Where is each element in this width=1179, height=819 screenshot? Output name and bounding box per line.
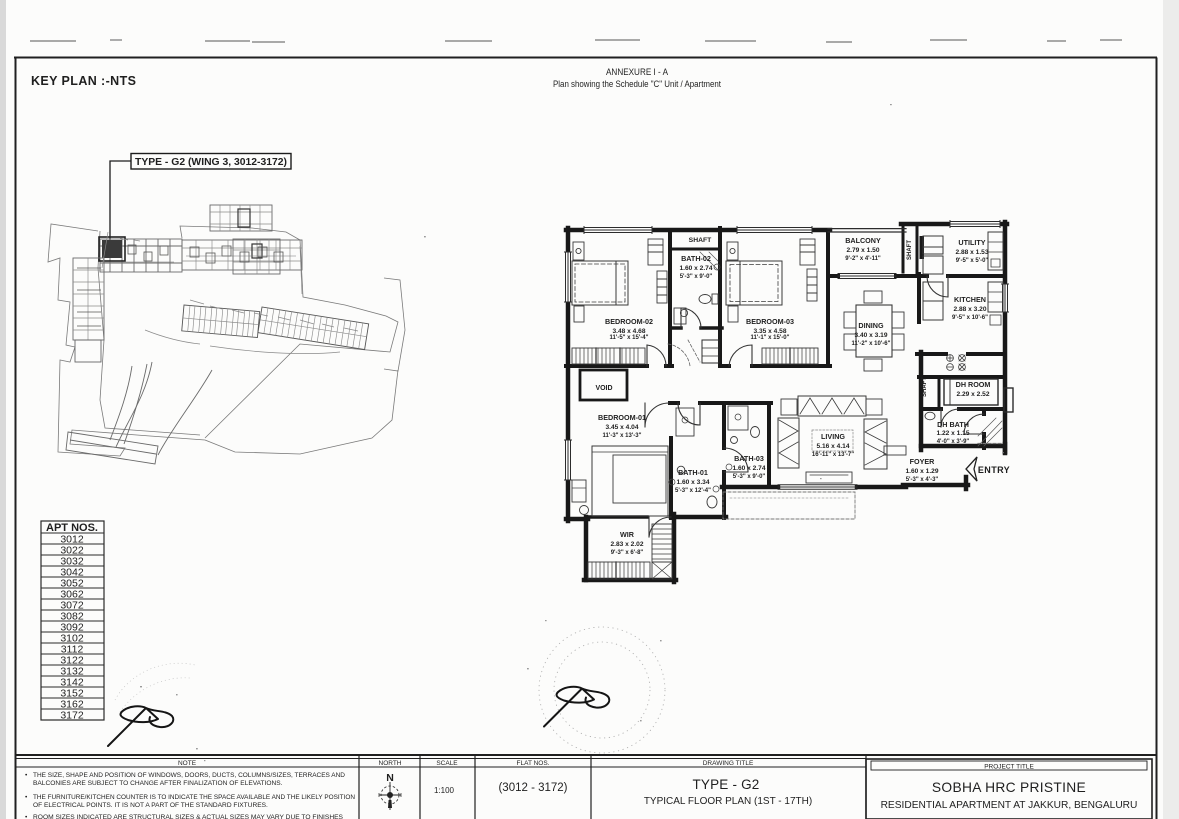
svg-text:TYPICAL FLOOR PLAN (1ST - 17TH: TYPICAL FLOOR PLAN (1ST - 17TH) [644, 796, 812, 807]
svg-text:KEY PLAN :-NTS: KEY PLAN :-NTS [31, 74, 136, 88]
svg-text:11'-1" x 15'-0": 11'-1" x 15'-0" [751, 335, 790, 341]
svg-text:SHAFT: SHAFT [689, 237, 713, 244]
svg-text:APT NOS.: APT NOS. [46, 522, 98, 534]
svg-text:DRAWING TITLE: DRAWING TITLE [703, 760, 754, 767]
svg-text:2.29 x 2.52: 2.29 x 2.52 [957, 391, 990, 398]
svg-text:BEDROOM-01: BEDROOM-01 [598, 413, 646, 422]
svg-text:KITCHEN: KITCHEN [954, 295, 986, 304]
svg-text:1.60 x 1.29: 1.60 x 1.29 [906, 468, 939, 475]
svg-text:ENTRY: ENTRY [978, 465, 1010, 475]
svg-text:SOBHA HRC PRISTINE: SOBHA HRC PRISTINE [932, 780, 1086, 795]
svg-text:1:100: 1:100 [434, 786, 455, 795]
svg-text:2.83 x 2.02: 2.83 x 2.02 [611, 541, 644, 548]
svg-text:TYPE - G2: TYPE - G2 [692, 777, 759, 792]
svg-text:OF ELECTRICAL POINTS. IT IS NO: OF ELECTRICAL POINTS. IT IS NOT A PART O… [33, 802, 268, 809]
svg-text:4'-0" x 3'-9": 4'-0" x 3'-9" [937, 439, 970, 445]
svg-text:2.79 x 1.50: 2.79 x 1.50 [847, 247, 880, 254]
svg-text:WIR: WIR [620, 530, 635, 539]
svg-text:9'-5" x 5'-0": 9'-5" x 5'-0" [956, 258, 989, 264]
svg-text:5'-3" x 9'-0": 5'-3" x 9'-0" [680, 274, 713, 280]
svg-text:DH ROOM: DH ROOM [956, 380, 991, 389]
svg-text:5'-3" x 4'-3": 5'-3" x 4'-3" [906, 477, 939, 483]
svg-text:9'-5" x 10'-6": 9'-5" x 10'-6" [952, 315, 988, 321]
svg-text:PROJECT TITLE: PROJECT TITLE [984, 764, 1034, 771]
svg-text:THE SIZE, SHAPE AND POSITION O: THE SIZE, SHAPE AND POSITION OF WINDOWS,… [33, 772, 345, 779]
svg-text:3.48 x 4.68: 3.48 x 4.68 [613, 328, 646, 335]
svg-text:BATH-02: BATH-02 [681, 254, 711, 263]
svg-text:BATH-03: BATH-03 [734, 454, 764, 463]
svg-text:NORTH: NORTH [379, 760, 402, 767]
svg-text:NOTE: NOTE [178, 760, 197, 767]
svg-text:1.60 x 3.34: 1.60 x 3.34 [677, 479, 710, 486]
svg-text:BATH-01: BATH-01 [678, 468, 708, 477]
svg-text:UTILITY: UTILITY [958, 238, 985, 247]
svg-text:9'-2" x 4'-11": 9'-2" x 4'-11" [845, 256, 881, 262]
svg-text:DINING: DINING [858, 321, 884, 330]
svg-text:1.60 x 2.74: 1.60 x 2.74 [680, 265, 713, 272]
svg-text:BALCONY: BALCONY [845, 236, 881, 245]
svg-text:SHAFT: SHAFT [907, 240, 913, 260]
svg-text:2.88 x 3.20: 2.88 x 3.20 [954, 306, 987, 313]
svg-text:2.88 x 1.53: 2.88 x 1.53 [956, 249, 989, 256]
svg-text:3.40 x 3.19: 3.40 x 3.19 [855, 332, 888, 339]
svg-text:ANNEXURE I - A: ANNEXURE I - A [606, 67, 668, 77]
svg-text:DH BATH: DH BATH [937, 420, 969, 429]
svg-text:(3012 - 3172): (3012 - 3172) [498, 782, 567, 794]
svg-text:BEDROOM-03: BEDROOM-03 [746, 317, 794, 326]
svg-text:16'-11" x 13'-7": 16'-11" x 13'-7" [812, 452, 854, 458]
svg-text:9'-3" x 6'-8": 9'-3" x 6'-8" [611, 550, 644, 556]
svg-text:BALCONIES ARE SUBJECT TO CHANG: BALCONIES ARE SUBJECT TO CHANGE AFTER FI… [33, 780, 283, 787]
svg-text:11'-2" x 10'-6": 11'-2" x 10'-6" [852, 341, 891, 347]
svg-text:SCALE: SCALE [436, 760, 458, 767]
svg-text:TYPE - G2 (WING 3, 3012-3172): TYPE - G2 (WING 3, 3012-3172) [135, 156, 287, 168]
svg-text:RESIDENTIAL APARTMENT AT JAKKU: RESIDENTIAL APARTMENT AT JAKKUR, BENGALU… [881, 800, 1138, 811]
svg-text:5'-3" x 12'-4": 5'-3" x 12'-4" [675, 488, 711, 494]
svg-text:BEDROOM-02: BEDROOM-02 [605, 317, 653, 326]
svg-text:ROOM SIZES INDICATED ARE STRUC: ROOM SIZES INDICATED ARE STRUCTURAL SIZE… [33, 814, 344, 819]
svg-text:3172: 3172 [60, 710, 84, 722]
svg-text:FOYER: FOYER [910, 457, 936, 466]
svg-text:VOID: VOID [595, 385, 612, 392]
svg-text:SHAFT: SHAFT [922, 377, 928, 397]
svg-text:Plan showing the Schedule "C": Plan showing the Schedule "C" Unit / Apa… [553, 79, 721, 89]
svg-text:11'-5" x 15'-4": 11'-5" x 15'-4" [610, 335, 649, 341]
svg-text:5.16 x 4.14: 5.16 x 4.14 [817, 443, 850, 450]
svg-text:1.60 x 2.74: 1.60 x 2.74 [733, 465, 766, 472]
svg-text:5'-3" x 9'-0": 5'-3" x 9'-0" [733, 474, 766, 480]
svg-text:LIVING: LIVING [821, 432, 845, 441]
svg-text:3.45 x 4.04: 3.45 x 4.04 [606, 424, 639, 431]
svg-text:3.35 x 4.58: 3.35 x 4.58 [754, 328, 787, 335]
svg-text:FLAT NOS.: FLAT NOS. [517, 760, 550, 767]
svg-text:THE FURNITURE/KITCHEN COUNTER: THE FURNITURE/KITCHEN COUNTER IS TO INDI… [33, 794, 355, 801]
svg-text:1.22 x 1.15: 1.22 x 1.15 [937, 430, 970, 437]
svg-text:11'-3" x 13'-3": 11'-3" x 13'-3" [603, 433, 642, 439]
